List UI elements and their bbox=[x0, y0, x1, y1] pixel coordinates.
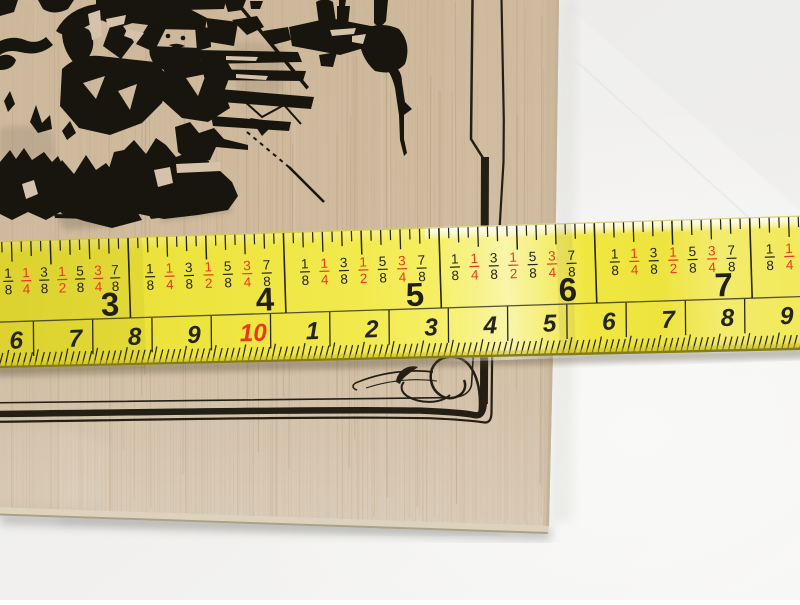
svg-text:8: 8 bbox=[185, 276, 193, 291]
svg-text:1: 1 bbox=[451, 251, 459, 266]
svg-text:4: 4 bbox=[471, 267, 479, 282]
svg-text:4: 4 bbox=[23, 282, 31, 297]
svg-text:7: 7 bbox=[727, 243, 735, 258]
svg-text:10: 10 bbox=[239, 320, 267, 348]
svg-text:2: 2 bbox=[205, 276, 213, 291]
svg-text:8: 8 bbox=[340, 271, 348, 286]
svg-text:3: 3 bbox=[398, 253, 406, 268]
svg-text:1: 1 bbox=[320, 256, 328, 271]
svg-text:8: 8 bbox=[146, 278, 154, 293]
svg-text:2: 2 bbox=[360, 271, 368, 286]
svg-text:4: 4 bbox=[631, 262, 639, 277]
svg-text:8: 8 bbox=[301, 273, 309, 288]
svg-text:1: 1 bbox=[359, 254, 367, 269]
svg-text:8: 8 bbox=[224, 275, 232, 290]
svg-text:3: 3 bbox=[100, 285, 120, 323]
svg-text:3: 3 bbox=[490, 250, 498, 265]
svg-text:4: 4 bbox=[244, 275, 252, 290]
svg-text:8: 8 bbox=[720, 305, 735, 332]
svg-text:7: 7 bbox=[68, 325, 84, 352]
svg-text:4: 4 bbox=[482, 312, 498, 339]
svg-text:1: 1 bbox=[4, 266, 12, 281]
svg-text:8: 8 bbox=[766, 258, 774, 273]
svg-text:5: 5 bbox=[224, 259, 232, 274]
svg-text:4: 4 bbox=[321, 272, 329, 287]
svg-text:1: 1 bbox=[509, 250, 517, 265]
svg-text:4: 4 bbox=[786, 257, 794, 272]
svg-text:2: 2 bbox=[59, 280, 67, 295]
svg-text:6: 6 bbox=[9, 327, 24, 354]
svg-text:8: 8 bbox=[77, 280, 85, 295]
svg-text:5: 5 bbox=[379, 254, 387, 269]
svg-text:9: 9 bbox=[779, 303, 794, 330]
svg-text:1: 1 bbox=[305, 318, 319, 345]
svg-text:1: 1 bbox=[785, 241, 793, 256]
svg-text:3: 3 bbox=[424, 314, 439, 341]
svg-text:3: 3 bbox=[40, 265, 48, 280]
svg-text:8: 8 bbox=[689, 260, 697, 275]
svg-text:2: 2 bbox=[670, 261, 678, 276]
svg-text:6: 6 bbox=[558, 271, 578, 309]
svg-text:1: 1 bbox=[766, 241, 774, 256]
svg-text:3: 3 bbox=[94, 263, 102, 278]
svg-text:3: 3 bbox=[708, 243, 716, 258]
svg-text:8: 8 bbox=[127, 324, 142, 351]
svg-text:9: 9 bbox=[187, 322, 202, 349]
svg-text:8: 8 bbox=[611, 263, 619, 278]
svg-text:8: 8 bbox=[41, 281, 49, 296]
svg-text:8: 8 bbox=[650, 262, 658, 277]
svg-text:7: 7 bbox=[111, 262, 119, 277]
svg-text:1: 1 bbox=[669, 245, 677, 260]
svg-text:1: 1 bbox=[22, 265, 30, 280]
svg-text:1: 1 bbox=[204, 259, 212, 274]
svg-text:3: 3 bbox=[548, 248, 556, 263]
svg-text:3: 3 bbox=[340, 255, 348, 270]
svg-text:5: 5 bbox=[688, 244, 696, 259]
svg-text:5: 5 bbox=[542, 310, 557, 337]
svg-text:1: 1 bbox=[58, 264, 66, 279]
svg-text:1: 1 bbox=[470, 251, 478, 266]
svg-text:5: 5 bbox=[528, 249, 536, 264]
svg-text:1: 1 bbox=[301, 256, 309, 271]
svg-text:7: 7 bbox=[714, 266, 734, 304]
svg-text:4: 4 bbox=[548, 265, 556, 280]
svg-text:2: 2 bbox=[510, 266, 518, 281]
svg-text:7: 7 bbox=[263, 257, 271, 272]
svg-text:4: 4 bbox=[166, 277, 174, 292]
svg-text:4: 4 bbox=[255, 280, 275, 318]
svg-text:6: 6 bbox=[602, 308, 617, 335]
svg-text:8: 8 bbox=[379, 270, 387, 285]
svg-text:8: 8 bbox=[490, 267, 498, 282]
svg-text:1: 1 bbox=[611, 246, 619, 261]
svg-text:7: 7 bbox=[661, 307, 677, 334]
svg-text:3: 3 bbox=[243, 258, 251, 273]
svg-text:8: 8 bbox=[451, 268, 459, 283]
svg-text:8: 8 bbox=[5, 282, 13, 297]
svg-text:5: 5 bbox=[405, 276, 425, 314]
svg-text:7: 7 bbox=[567, 248, 575, 263]
svg-text:5: 5 bbox=[76, 263, 84, 278]
svg-text:2: 2 bbox=[364, 316, 380, 343]
svg-text:1: 1 bbox=[165, 261, 173, 276]
svg-text:8: 8 bbox=[529, 265, 537, 280]
svg-text:7: 7 bbox=[417, 253, 425, 268]
svg-text:3: 3 bbox=[650, 245, 658, 260]
svg-text:1: 1 bbox=[630, 246, 638, 261]
svg-text:1: 1 bbox=[146, 261, 154, 276]
svg-text:3: 3 bbox=[185, 260, 193, 275]
